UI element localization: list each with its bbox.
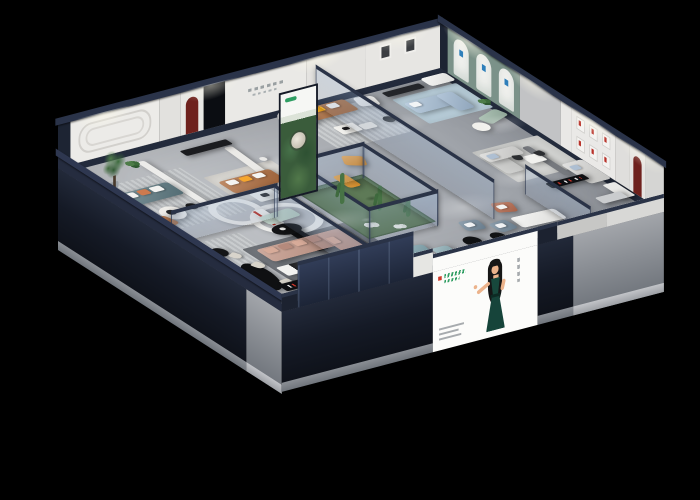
wall-segment-plain: [440, 22, 448, 73]
bench-gray: [595, 191, 629, 203]
framed-picture: [589, 144, 597, 162]
wall-segment-plain: [204, 80, 225, 130]
framed-picture: [589, 124, 597, 142]
framed-picture: [602, 132, 610, 150]
framed-picture: [576, 116, 584, 134]
arched-panel: [476, 50, 491, 98]
arched-panel: [454, 36, 469, 84]
vertical-caption: [517, 258, 520, 283]
wall-segment-plain: [413, 248, 433, 277]
framed-picture: [576, 136, 584, 154]
wall-segment-plain: [561, 99, 572, 152]
wall-segment-facedark: [538, 236, 574, 325]
cactus: [335, 168, 349, 206]
arched-panel: [499, 65, 514, 113]
brand-mark: [438, 276, 442, 281]
woman-arm: [500, 279, 506, 290]
showroom-isometric-render: [0, 0, 700, 500]
wall-segment-niche: [181, 86, 204, 136]
woman-hand: [474, 285, 478, 290]
framed-picture: [602, 152, 610, 170]
forest-lightbox-banner: [279, 83, 318, 201]
wall-segment-plain: [159, 92, 180, 142]
